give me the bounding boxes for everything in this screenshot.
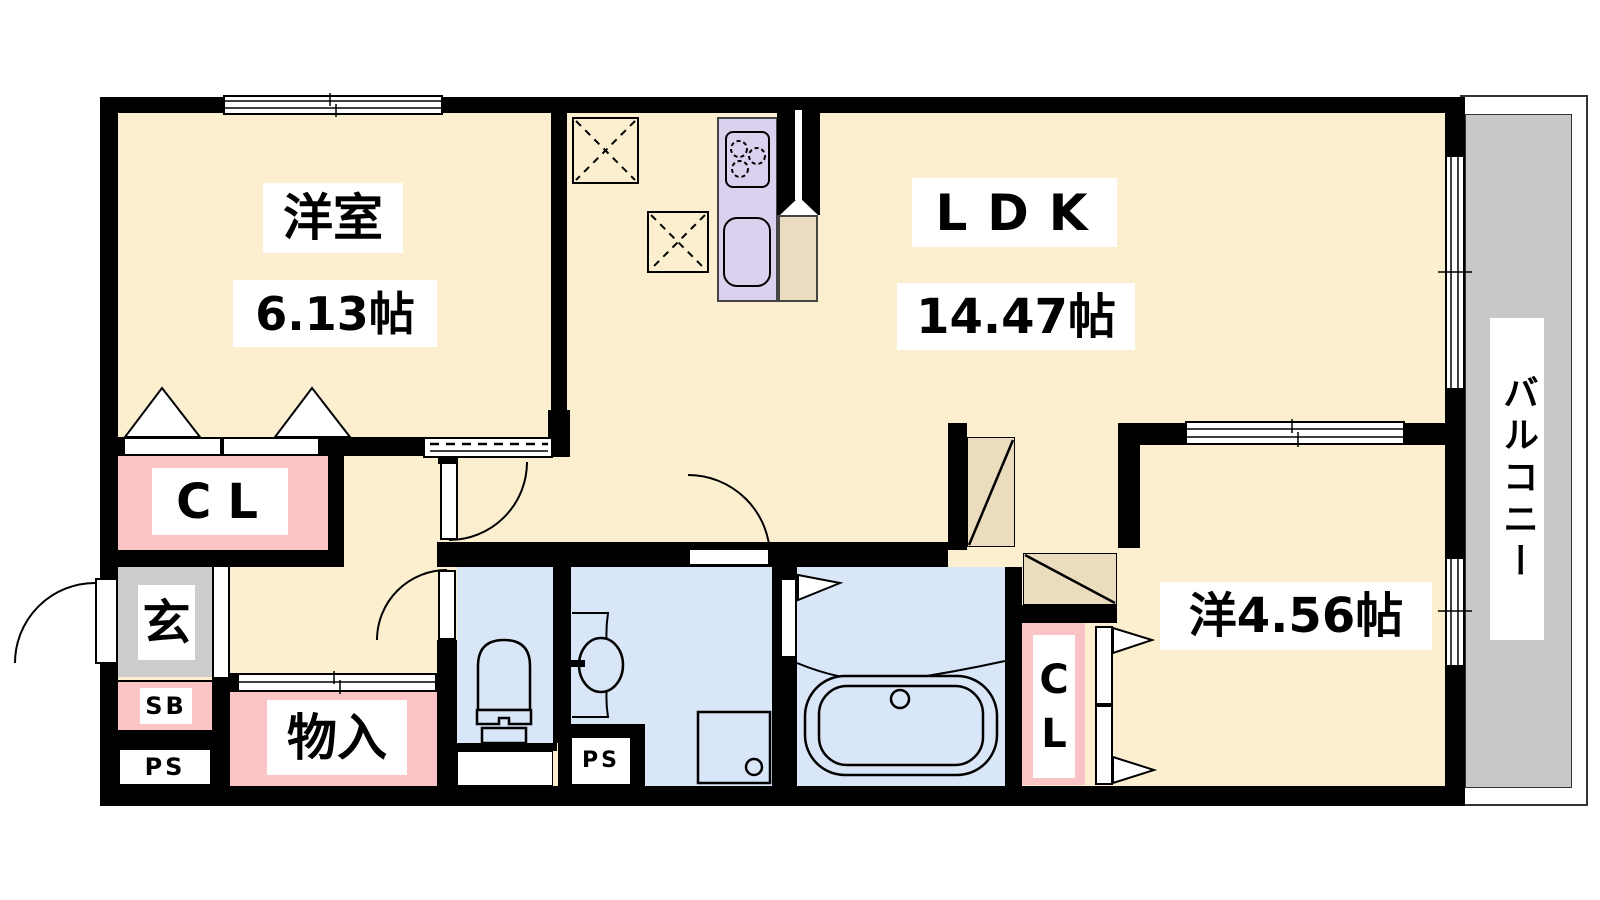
- toilet-room: [457, 567, 553, 743]
- wall-vestibule-west: [948, 423, 967, 550]
- ldk-size-text: 14.47帖: [916, 293, 1116, 341]
- wall-bath-east: [1005, 567, 1022, 805]
- entrance-door-arc: [15, 583, 95, 663]
- sliding-door-bedroom1: [423, 437, 553, 458]
- storage-label: 物入: [267, 700, 407, 775]
- closet2-text-c: C: [1039, 660, 1068, 700]
- toilet-niche: [457, 751, 553, 786]
- storage-text: 物入: [287, 713, 387, 763]
- kitchen-counter: [717, 117, 778, 302]
- refrigerator-space: [778, 215, 818, 302]
- ldk-size-label: 14.47帖: [897, 283, 1135, 350]
- ldk-name-text: LDK: [935, 188, 1107, 238]
- entrance-label: 玄: [138, 585, 195, 660]
- wall-toilet-washroom-divider: [553, 567, 571, 743]
- bedroom1-name-label: 洋室: [263, 183, 403, 253]
- hall-ldk-door-leaf: [440, 462, 458, 540]
- ps-center-label: PS: [572, 738, 630, 784]
- wall-closet2-top: [1005, 605, 1117, 623]
- bedroom2-label: 洋4.56帖: [1160, 582, 1432, 650]
- window-bedroom2-balcony: [1445, 557, 1465, 667]
- window-ldk-balcony: [1445, 155, 1465, 390]
- bedroom1-name-text: 洋室: [283, 193, 383, 243]
- kitchen-pillar-slit: [795, 110, 802, 200]
- bathroom: [797, 567, 1005, 786]
- closet2-label: C L: [1033, 635, 1075, 778]
- entrance-step: [212, 567, 230, 677]
- door-swing-panel-2: [1023, 553, 1117, 605]
- floor-plan: 洋室 6.13帖 LDK 14.47帖 洋4.56帖 CL 玄 SB PS 物入…: [0, 0, 1600, 900]
- wall-storage-east: [437, 675, 457, 786]
- sliding-door-storage: [237, 673, 437, 692]
- window-bedroom1-top: [223, 95, 443, 115]
- wall-divider-west: [1118, 423, 1185, 445]
- entrance-door-leaf: [95, 578, 118, 664]
- washroom-door-leaf: [688, 548, 770, 566]
- bedroom1-size-text: 6.13帖: [255, 291, 415, 337]
- ldk-name-label: LDK: [912, 178, 1117, 247]
- wall-bottom: [100, 786, 1465, 806]
- ps-left-label: PS: [135, 752, 195, 782]
- wall-toilet-bottom: [437, 743, 557, 751]
- bedroom1-size-label: 6.13帖: [233, 280, 437, 347]
- closet2-door-panel-top: [1095, 626, 1113, 705]
- wall-divider-east: [1405, 423, 1447, 445]
- wall-toilet-west-lower: [437, 640, 457, 675]
- closet1-label: CL: [152, 468, 288, 535]
- sliding-door-ldk-bedroom2: [1185, 421, 1405, 445]
- bathroom-door-leaf: [780, 578, 797, 658]
- closet1-door-panel-right: [222, 437, 320, 456]
- ps-left-text: PS: [145, 755, 186, 779]
- closet2-door-panel-bottom: [1095, 705, 1113, 785]
- balcony-text: バルコニー: [1499, 374, 1535, 584]
- closet1-text: CL: [176, 478, 274, 526]
- door-swing-panel-1: [967, 437, 1015, 547]
- balcony-label: バルコニー: [1490, 318, 1544, 640]
- closet1-door-panel-left: [123, 437, 222, 456]
- wall-bedroom1-east: [551, 113, 567, 413]
- wall-closet1-bottom: [100, 550, 344, 567]
- shoe-box-label: SB: [140, 688, 192, 724]
- bedroom2-text: 洋4.56帖: [1189, 592, 1403, 640]
- entrance-text: 玄: [142, 599, 190, 647]
- wall-sb-bottom: [118, 730, 212, 748]
- closet2-text-l: L: [1041, 714, 1067, 754]
- shoe-box-text: SB: [145, 694, 187, 718]
- ps-center-text: PS: [582, 750, 620, 772]
- toilet-door-leaf: [438, 570, 456, 640]
